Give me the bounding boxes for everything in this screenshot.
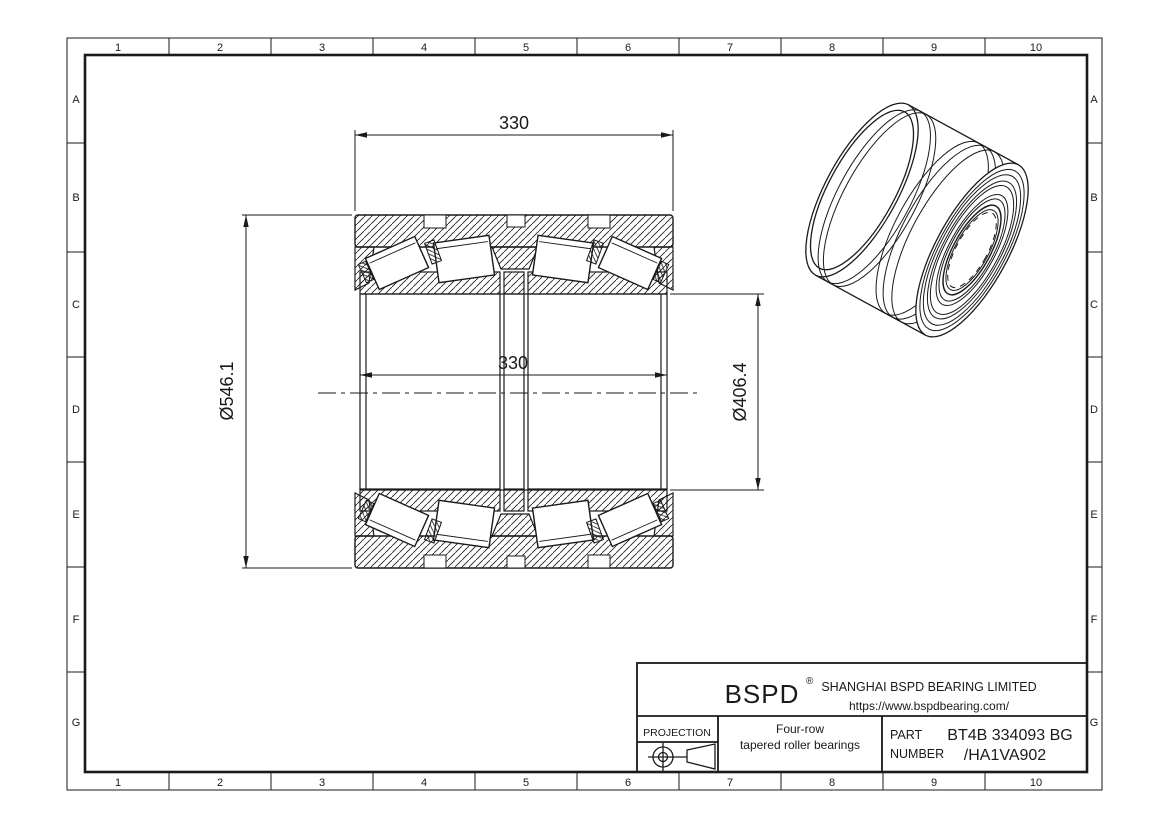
grid-col-label: 5 xyxy=(523,777,529,789)
part-label-line2: NUMBER xyxy=(890,747,944,761)
brand-logo: BSPD xyxy=(725,679,800,709)
taper-roller xyxy=(433,500,494,547)
grid-row-label: F xyxy=(1091,614,1098,626)
section-top-half xyxy=(355,215,673,294)
section-bottom-half xyxy=(355,489,673,568)
grid-ruler-left: A B C D E F G xyxy=(72,94,81,729)
grid-col-label: 7 xyxy=(727,777,733,789)
grid-col-label: 4 xyxy=(421,42,427,54)
technical-drawing: 1 2 3 4 5 6 7 8 9 10 1 2 3 4 5 6 7 8 9 1… xyxy=(0,0,1170,827)
grid-ruler-top: 1 2 3 4 5 6 7 8 9 10 xyxy=(115,42,1042,54)
grid-col-label: 9 xyxy=(931,777,937,789)
dimension-arrows xyxy=(243,132,760,568)
grid-col-label: 6 xyxy=(625,42,631,54)
product-type-line1: Four-row xyxy=(776,722,824,736)
projection-symbol-icon xyxy=(648,743,715,771)
grid-col-label: 6 xyxy=(625,777,631,789)
bore-lines xyxy=(360,294,667,490)
grid-col-label: 9 xyxy=(931,42,937,54)
grid-row-label: D xyxy=(1090,404,1098,416)
drawing-sheet: 1 2 3 4 5 6 7 8 9 10 1 2 3 4 5 6 7 8 9 1… xyxy=(0,0,1170,827)
grid-col-label: 7 xyxy=(727,42,733,54)
grid-col-label: 8 xyxy=(829,777,835,789)
grid-col-label: 2 xyxy=(217,42,223,54)
taper-roller xyxy=(532,500,593,547)
grid-row-label: B xyxy=(72,192,79,204)
dim-outer-diameter: Ø546.1 xyxy=(217,361,237,420)
grid-col-label: 4 xyxy=(421,777,427,789)
company-website: https://www.bspdbearing.com/ xyxy=(849,699,1010,713)
grid-row-label: A xyxy=(1090,94,1098,106)
grid-col-label: 5 xyxy=(523,42,529,54)
registered-trademark: ® xyxy=(806,676,814,687)
grid-row-label: A xyxy=(72,94,80,106)
product-type-line2: tapered roller bearings xyxy=(740,738,860,752)
part-number-line1: BT4B 334093 BG xyxy=(947,727,1072,744)
grid-col-label: 1 xyxy=(115,777,121,789)
grid-row-label: E xyxy=(1090,509,1097,521)
part-label-line1: PART xyxy=(890,728,923,742)
grid-row-label: C xyxy=(1090,299,1098,311)
cross-section-view xyxy=(318,215,700,568)
grid-col-label: 10 xyxy=(1030,777,1042,789)
grid-ruler-right: A B C D E F G xyxy=(1090,94,1099,729)
grid-row-label: G xyxy=(72,717,81,729)
grid-col-label: 8 xyxy=(829,42,835,54)
projection-label: PROJECTION xyxy=(643,727,711,739)
grid-col-label: 2 xyxy=(217,777,223,789)
grid-row-label: B xyxy=(1090,192,1097,204)
isometric-view xyxy=(784,88,1050,353)
dim-bore-diameter: Ø406.4 xyxy=(730,362,750,421)
taper-roller xyxy=(433,235,494,282)
dim-top-width: 330 xyxy=(499,113,529,133)
grid-row-label: C xyxy=(72,299,80,311)
company-name: SHANGHAI BSPD BEARING LIMITED xyxy=(821,680,1036,694)
grid-col-label: 3 xyxy=(319,777,325,789)
grid-row-label: F xyxy=(73,614,80,626)
dim-inner-width: 330 xyxy=(498,353,528,373)
grid-row-label: E xyxy=(72,509,79,521)
grid-row-label: D xyxy=(72,404,80,416)
grid-ruler-bottom: 1 2 3 4 5 6 7 8 9 10 xyxy=(115,777,1042,789)
grid-col-label: 1 xyxy=(115,42,121,54)
grid-col-label: 10 xyxy=(1030,42,1042,54)
part-number-line2: /HA1VA902 xyxy=(964,747,1047,764)
grid-col-label: 3 xyxy=(319,42,325,54)
grid-row-label: G xyxy=(1090,717,1099,729)
taper-roller xyxy=(532,235,593,282)
title-block: BSPD ® SHANGHAI BSPD BEARING LIMITED htt… xyxy=(637,663,1087,772)
